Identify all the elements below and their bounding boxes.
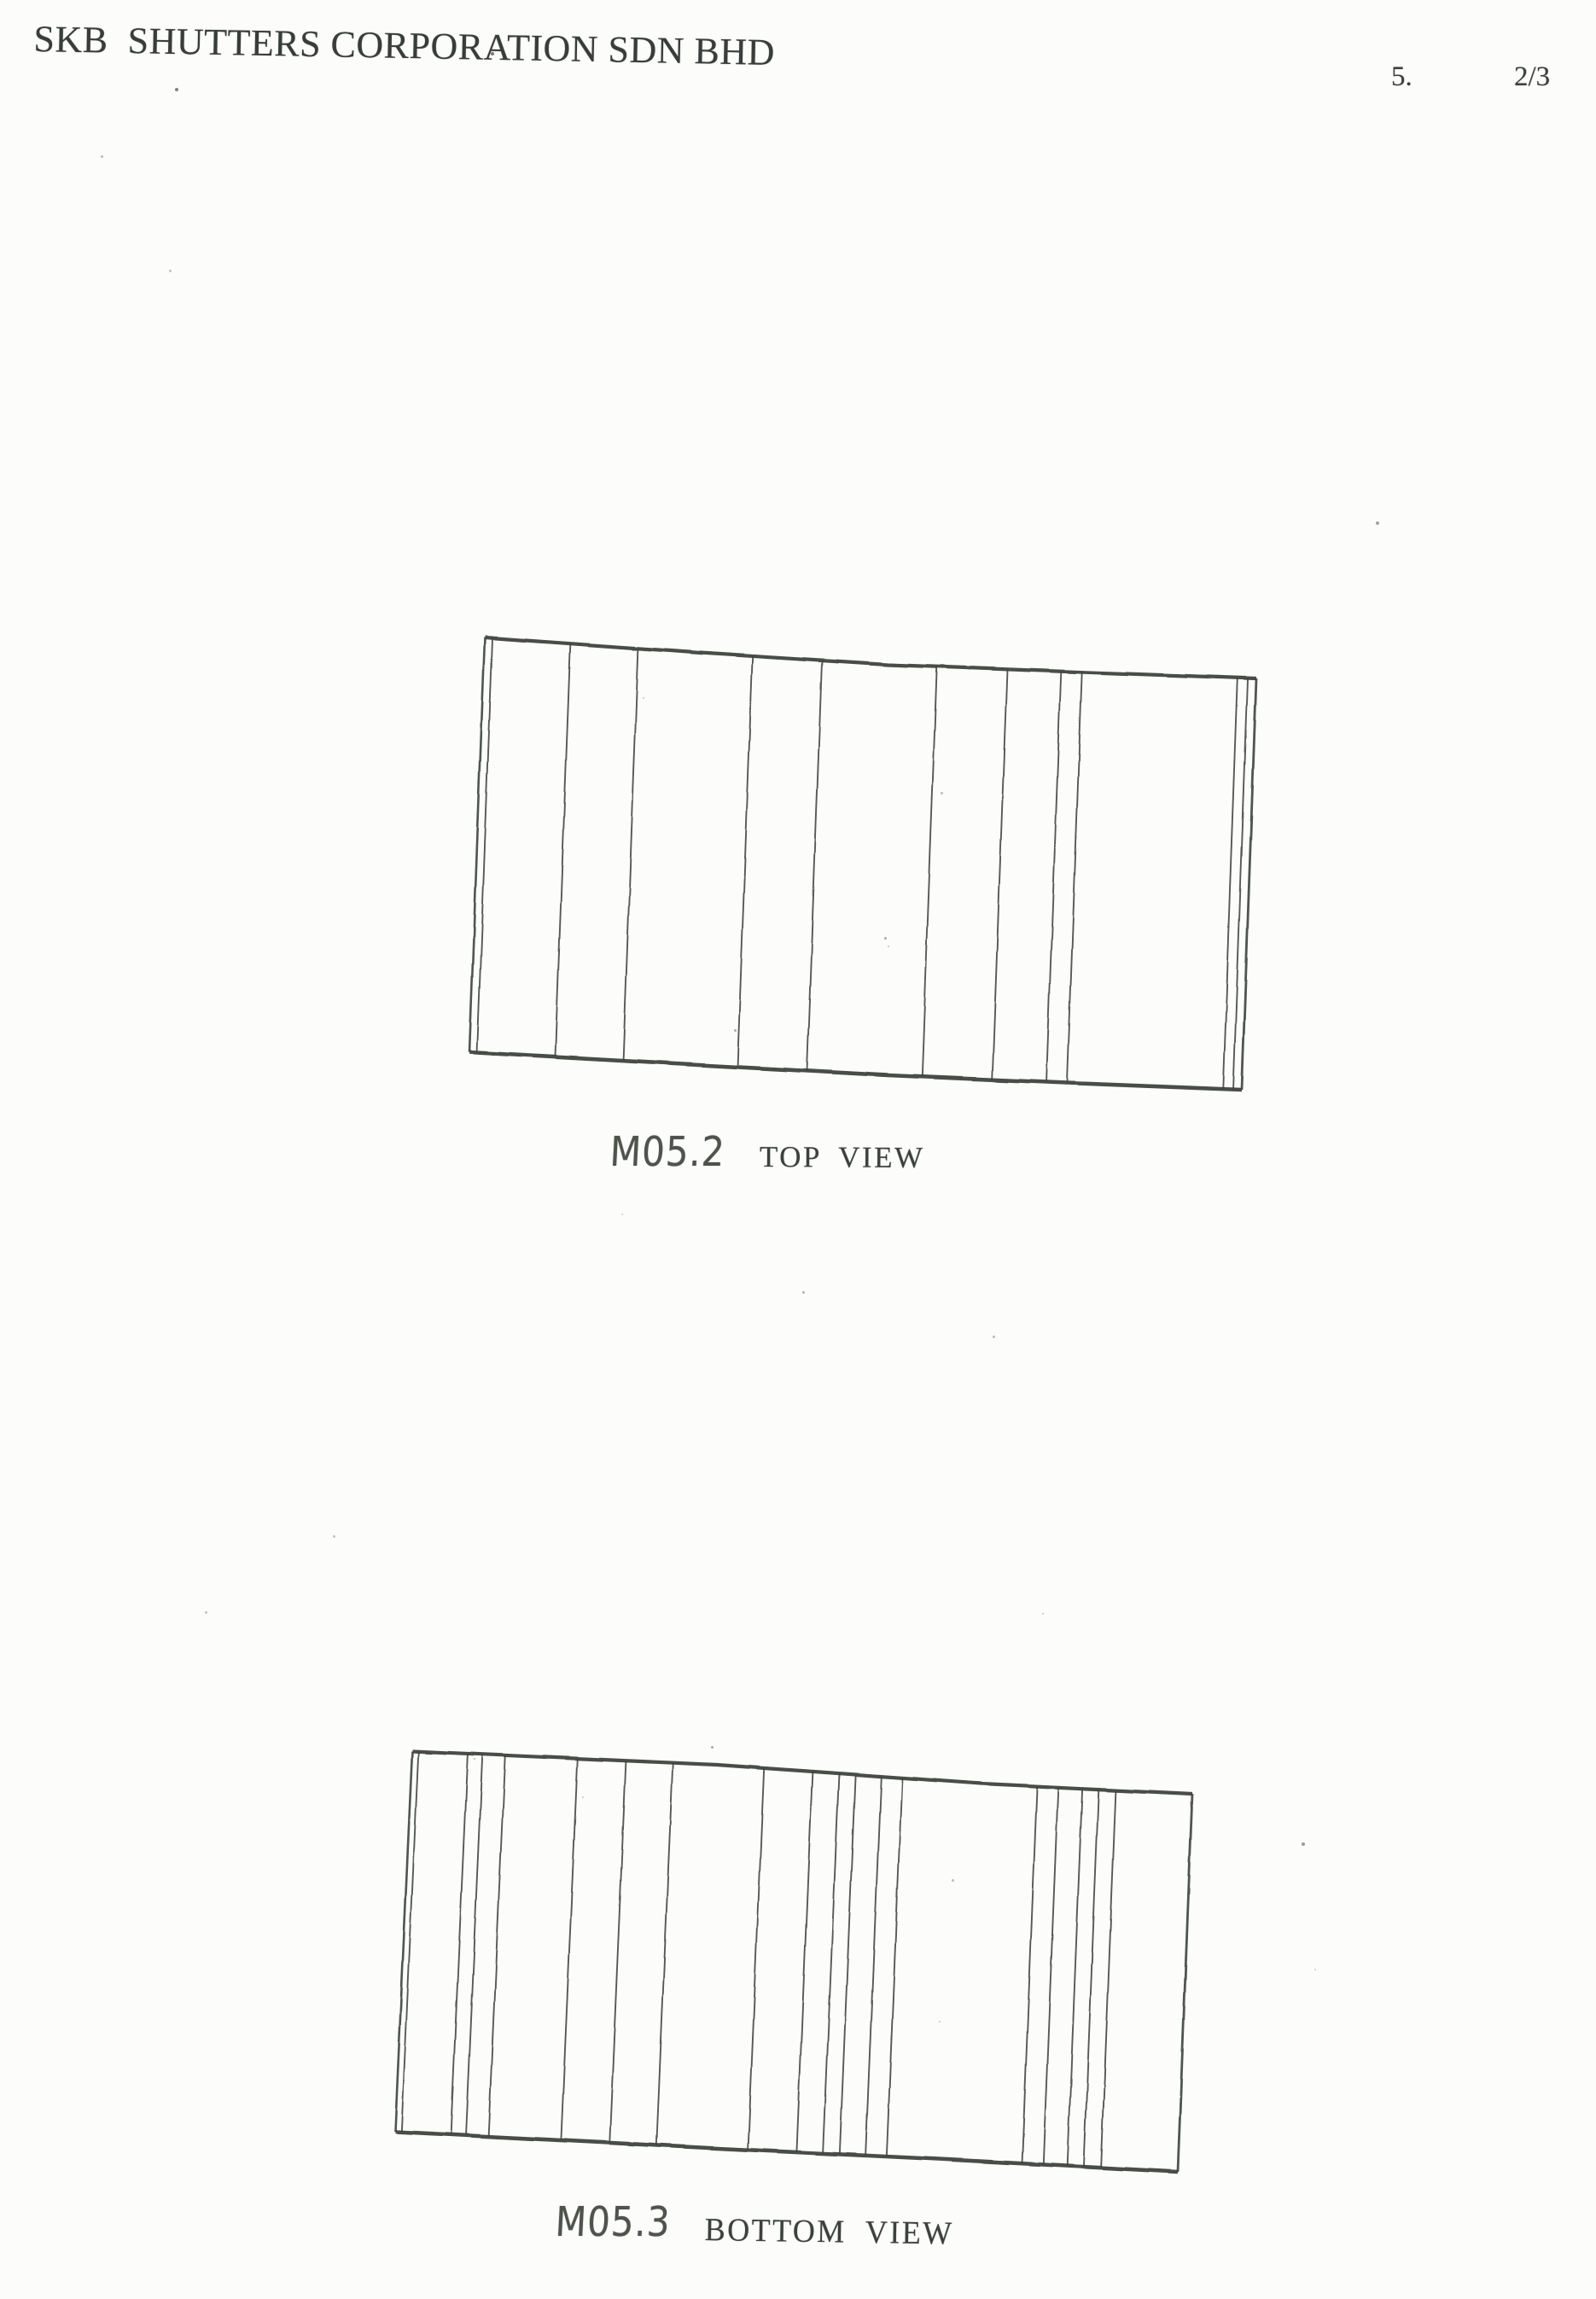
drawing-border-top xyxy=(485,637,1256,678)
drawing-border-left xyxy=(469,637,485,1052)
panel-divider-line xyxy=(466,1755,483,2136)
panel-divider-line xyxy=(1068,1789,1082,2166)
drawing-border-right xyxy=(1178,1794,1192,2172)
figure-title-bottom-view: BOTTOM VIEW xyxy=(704,2214,953,2250)
scan-speck xyxy=(1376,521,1379,525)
scan-speck xyxy=(1302,1842,1305,1846)
panel-divider-line xyxy=(656,1763,673,2145)
panel-divider-line xyxy=(1046,672,1061,1082)
scan-speck xyxy=(884,937,887,940)
scan-speck xyxy=(941,792,943,794)
scan-speck xyxy=(1042,1613,1044,1615)
panel-divider-line xyxy=(451,1754,468,2134)
figure-label-handwritten-bottom-view: M05.3 xyxy=(554,2202,671,2243)
panel-divider-line xyxy=(922,666,936,1077)
scan-speck xyxy=(993,1336,995,1338)
panel-divider-line xyxy=(840,1775,855,2155)
scan-speck xyxy=(491,52,494,55)
panel-divider-line xyxy=(555,643,570,1056)
panel-divider-line xyxy=(807,661,822,1071)
panel-divider-line xyxy=(1022,1786,1038,2163)
scan-speck xyxy=(474,1758,475,1760)
scan-speck xyxy=(952,1879,954,1882)
bottom-view-drawing xyxy=(395,1751,1192,2172)
scan-speck xyxy=(1314,1969,1316,1970)
drawing-border-bottom xyxy=(395,2132,1178,2172)
panel-divider-line xyxy=(561,1759,577,2140)
scan-speck xyxy=(802,1291,805,1294)
scan-speck xyxy=(333,1535,335,1538)
scan-speck xyxy=(939,2021,941,2023)
panel-divider-line xyxy=(748,1768,765,2150)
figure-title-top-view: TOP VIEW xyxy=(760,1142,925,1173)
scan-speck xyxy=(711,1746,714,1749)
scan-speck xyxy=(101,155,103,158)
drawing-border-bottom xyxy=(469,1052,1242,1090)
scan-speck xyxy=(175,88,178,91)
panel-divider-line xyxy=(865,1777,881,2156)
scan-speck xyxy=(205,1611,207,1614)
drawing-border-right xyxy=(1242,678,1256,1090)
panel-divider-line xyxy=(737,656,753,1068)
scan-speck xyxy=(734,1029,737,1032)
drawing-border-top xyxy=(412,1751,1192,1794)
panel-divider-line xyxy=(1067,672,1081,1083)
top-view-drawing xyxy=(469,637,1256,1090)
panel-divider-line xyxy=(993,669,1007,1080)
scan-speck xyxy=(582,1796,584,1798)
panel-divider-line xyxy=(824,1773,839,2153)
panel-divider-line xyxy=(623,649,638,1061)
panel-divider-line xyxy=(609,1761,626,2143)
panel-divider-line xyxy=(887,1778,902,2156)
panel-divider-line xyxy=(1101,1790,1115,2168)
scan-speck xyxy=(888,946,889,947)
scan-speck xyxy=(169,270,172,272)
panel-divider-line xyxy=(1084,1790,1098,2167)
panel-divider-line xyxy=(477,638,492,1053)
scanned-document-page: SKB SHUTTERS CORPORATION SDN BHD 5. 2/3 … xyxy=(0,0,1596,2299)
panel-divider-line xyxy=(488,1755,505,2137)
panel-divider-line xyxy=(1043,1787,1058,2164)
scan-speck xyxy=(621,1214,623,1215)
scan-speck xyxy=(643,697,644,699)
figure-label-handwritten-top-view: M05.2 xyxy=(609,1132,725,1173)
panel-divider-line xyxy=(796,1772,812,2152)
